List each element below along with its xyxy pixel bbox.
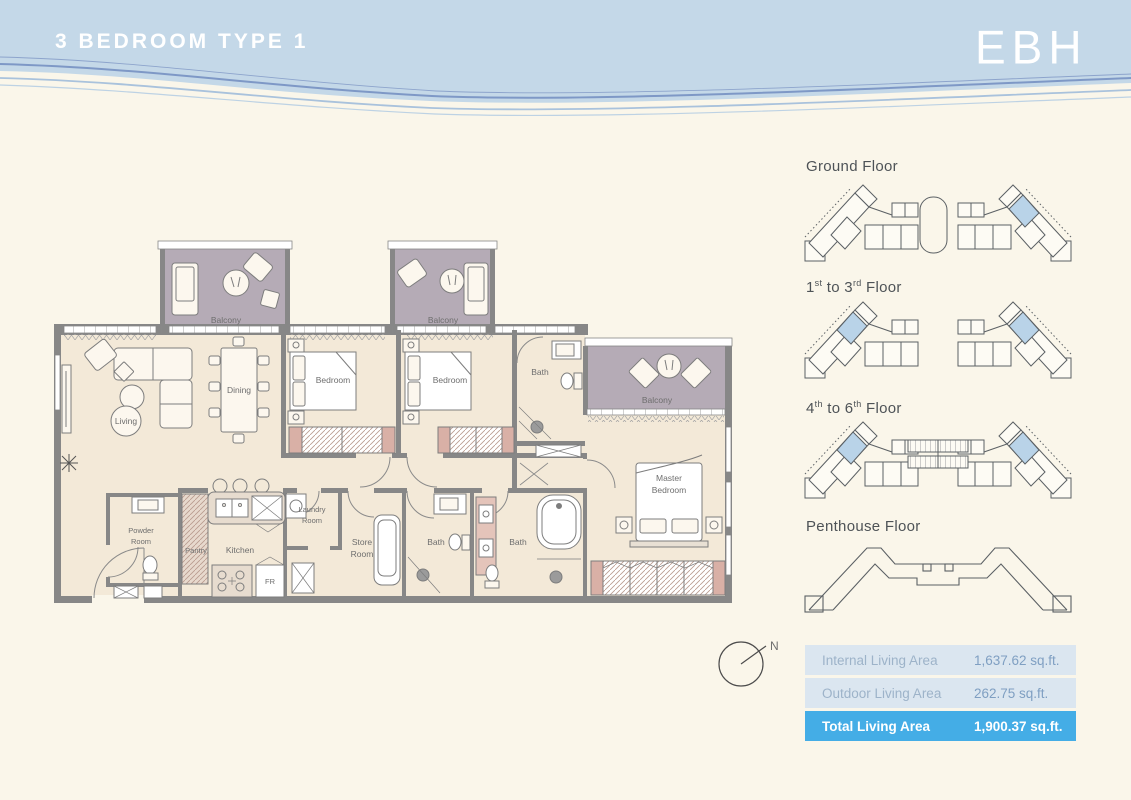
internal-area-label: Internal Living Area <box>822 653 974 668</box>
room-label-bath-top: Bath <box>531 367 549 377</box>
room-label-powder-1: Powder <box>128 526 154 535</box>
outdoor-area-value: 262.75 sq.ft. <box>974 686 1076 701</box>
table-row-internal: Internal Living Area 1,637.62 sq.ft. <box>805 645 1076 675</box>
room-label-kitchen: Kitchen <box>226 545 255 555</box>
floor-plan: Balcony Balcony Balcony Living Dining Be… <box>40 215 740 615</box>
room-label-store-2: Room <box>351 549 374 559</box>
room-label-master-1: Master <box>656 473 682 483</box>
keyplan-4-6 <box>805 422 1071 498</box>
room-label-living: Living <box>115 416 137 426</box>
total-area-label: Total Living Area <box>822 719 974 734</box>
room-label-fr: FR <box>265 577 276 586</box>
internal-area-value: 1,637.62 sq.ft. <box>974 653 1076 668</box>
table-row-total: Total Living Area 1,900.37 sq.ft. <box>805 711 1076 741</box>
outdoor-area-label: Outdoor Living Area <box>822 686 974 701</box>
room-label-store-1: Store <box>352 537 373 547</box>
compass-north-label: N <box>770 639 779 653</box>
room-label-laundry-2: Room <box>302 516 322 525</box>
keyplan-penthouse <box>805 548 1071 612</box>
compass: N <box>703 622 803 712</box>
room-label-bedroom-2: Bedroom <box>433 375 468 385</box>
room-label-master-2: Bedroom <box>652 485 687 495</box>
room-label-dining: Dining <box>227 385 251 395</box>
room-label-laundry-1: Laundry <box>298 505 325 514</box>
room-label-bedroom-1: Bedroom <box>316 375 351 385</box>
room-label-bath-2: Bath <box>509 537 527 547</box>
page-title: 3 BEDROOM TYPE 1 <box>55 30 308 54</box>
room-label-pantry: Pantry <box>185 546 207 555</box>
brand-logo: EBH <box>975 19 1088 75</box>
area-table: Internal Living Area 1,637.62 sq.ft. Out… <box>805 645 1076 744</box>
header-wave <box>0 0 1131 130</box>
keyplan-1-3 <box>805 302 1071 378</box>
room-label-bath-1: Bath <box>427 537 445 547</box>
keyplan-ground <box>805 185 1071 261</box>
room-label-balcony-2: Balcony <box>428 315 459 325</box>
room-label-balcony-3: Balcony <box>642 395 673 405</box>
room-label-powder-2: Room <box>131 537 151 546</box>
total-area-value: 1,900.37 sq.ft. <box>974 719 1076 734</box>
key-plan-diagrams <box>800 150 1090 620</box>
room-label-balcony-1: Balcony <box>211 315 242 325</box>
table-row-outdoor: Outdoor Living Area 262.75 sq.ft. <box>805 678 1076 708</box>
